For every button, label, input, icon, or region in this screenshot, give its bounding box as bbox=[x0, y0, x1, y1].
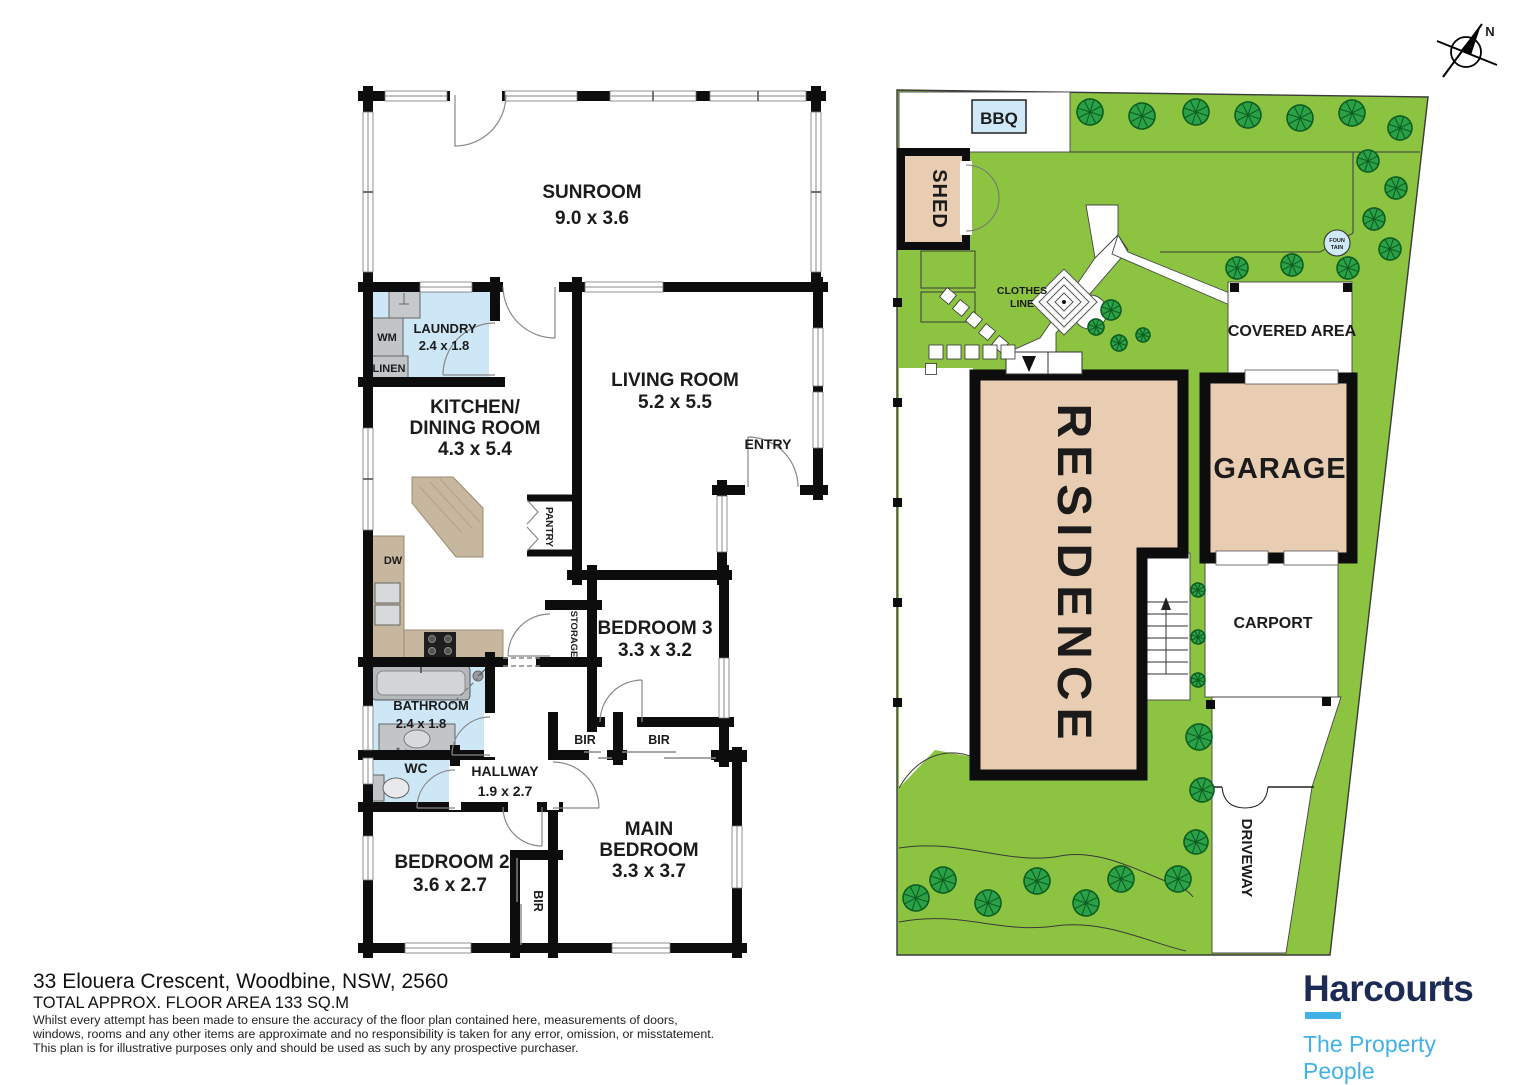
bathtub-icon bbox=[372, 666, 470, 700]
floor-area-total: TOTAL APPROX. FLOOR AREA 133 SQ.M bbox=[33, 994, 349, 1013]
label-bedroom2: BEDROOM 2 bbox=[394, 852, 509, 873]
side-path bbox=[899, 368, 973, 788]
label-bedroom3: BEDROOM 3 bbox=[597, 618, 712, 639]
property-address: 33 Elouera Crescent, Woodbine, NSW, 2560 bbox=[33, 970, 448, 994]
label-bbq: BBQ bbox=[980, 109, 1018, 128]
label-entry: ENTRY bbox=[745, 436, 793, 452]
label-driveway: DRIVEWAY bbox=[1238, 819, 1255, 898]
label-kitchen-1: KITCHEN/ bbox=[430, 397, 520, 418]
label-bir-right: BIR bbox=[648, 733, 670, 747]
label-mainbed-1: MAIN bbox=[625, 819, 674, 840]
label-storage: STORAGE bbox=[568, 611, 579, 658]
label-bir-left: BIR bbox=[574, 733, 596, 747]
label-laundry-dims: 2.4 x 1.8 bbox=[419, 338, 470, 353]
label-fountain-2: TAIN bbox=[1331, 245, 1343, 251]
label-covered-area: COVERED AREA bbox=[1228, 323, 1357, 340]
label-kitchen-2: DINING ROOM bbox=[410, 418, 541, 439]
stepping-stone bbox=[965, 345, 979, 359]
label-carport: CARPORT bbox=[1233, 615, 1312, 632]
label-mainbed-2: BEDROOM bbox=[599, 840, 698, 861]
label-clothesline-1: CLOTHES bbox=[997, 285, 1047, 297]
label-garage: GARAGE bbox=[1213, 453, 1346, 485]
label-clothesline-2: LINE bbox=[1010, 298, 1034, 310]
label-sunroom-dims: 9.0 x 3.6 bbox=[555, 208, 629, 229]
label-pantry: PANTRY bbox=[543, 507, 554, 547]
label-kitchen-dims: 4.3 x 5.4 bbox=[438, 439, 512, 460]
label-fountain-1: FOUN bbox=[1329, 238, 1345, 244]
label-bathroom: BATHROOM bbox=[393, 698, 469, 713]
brand-underline bbox=[1305, 1012, 1341, 1019]
brand-tagline: The Property People bbox=[1303, 1031, 1503, 1085]
label-compass-north: N bbox=[1485, 24, 1494, 39]
label-laundry: LAUNDRY bbox=[413, 321, 476, 336]
stepping-stone bbox=[1001, 345, 1015, 359]
harcourts-logo: Harcourts The Property People bbox=[1303, 968, 1503, 1085]
stepping-stone bbox=[929, 345, 943, 359]
stepping-stone bbox=[947, 345, 961, 359]
stepping-stone bbox=[926, 364, 937, 375]
label-living-dims: 5.2 x 5.5 bbox=[638, 392, 712, 413]
disclaimer-line-1: Whilst every attempt has been made to en… bbox=[33, 1014, 678, 1026]
label-bedroom3-dims: 3.3 x 3.2 bbox=[618, 640, 692, 661]
label-residence: RESIDENCE bbox=[1047, 403, 1100, 746]
label-mainbed-dims: 3.3 x 3.7 bbox=[612, 861, 686, 882]
label-dw: DW bbox=[384, 555, 403, 567]
label-hallway-dims: 1.9 x 2.7 bbox=[478, 783, 533, 799]
label-wc: WC bbox=[404, 760, 427, 776]
label-living: LIVING ROOM bbox=[611, 370, 739, 391]
label-hallway: HALLWAY bbox=[471, 763, 539, 779]
stepping-stone bbox=[983, 345, 997, 359]
label-bathroom-dims: 2.4 x 1.8 bbox=[396, 716, 447, 731]
brand-name: Harcourts bbox=[1303, 968, 1503, 1010]
disclaimer-line-3: This plan is for illustrative purposes o… bbox=[33, 1042, 579, 1054]
stove-icon bbox=[424, 632, 456, 657]
label-linen: LINEN bbox=[373, 363, 406, 375]
label-bedroom2-dims: 3.6 x 2.7 bbox=[413, 875, 487, 896]
floor-plan: SUNROOM 9.0 x 3.6 LAUNDRY 2.4 x 1.8 WM L… bbox=[350, 80, 840, 965]
label-wm: WM bbox=[377, 332, 397, 344]
site-plan: BBQ SHED CLOTHES LINE FOUN TAIN COVERED … bbox=[880, 10, 1510, 970]
label-sunroom: SUNROOM bbox=[542, 182, 641, 203]
disclaimer-line-2: windows, rooms and any other items are a… bbox=[33, 1028, 714, 1040]
label-shed: SHED bbox=[928, 169, 950, 229]
label-bir-closet: BIR bbox=[531, 890, 545, 912]
